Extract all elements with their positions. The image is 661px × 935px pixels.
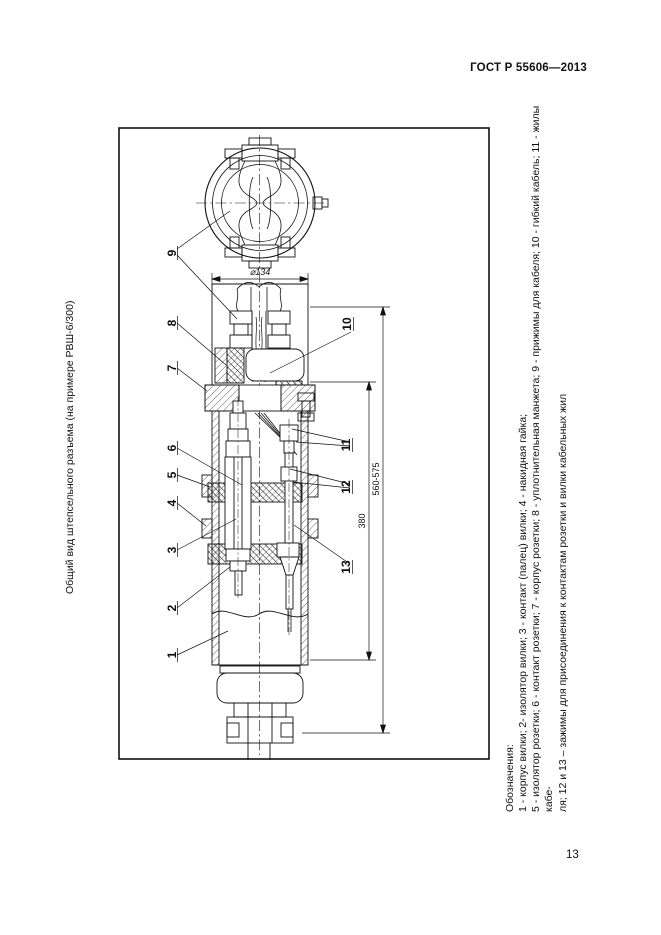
callout-9: 9 (165, 249, 179, 256)
dimension-diameter-label: ⌀134 (250, 267, 270, 277)
legend-line-2: 1 - корпус вилки; 2- изолятор вилки; 3 -… (517, 88, 530, 812)
legend-line-3: 5 - изолятор розетки; 6 - контакт розетк… (530, 88, 556, 812)
flexible-cable-part (246, 349, 304, 381)
cable-entry (237, 282, 282, 311)
callout-2: 2 (165, 604, 179, 611)
callout-3: 3 (165, 546, 179, 553)
sealing-sleeve (215, 348, 244, 383)
body-wall-left (212, 411, 219, 665)
callout-4: 4 (165, 499, 179, 506)
section-view (202, 282, 318, 760)
socket-contact-column (277, 425, 299, 632)
callout-12: 12 (339, 480, 353, 494)
callout-10: 10 (340, 317, 354, 331)
callout-13: 13 (339, 560, 353, 574)
callout-8: 8 (165, 319, 179, 326)
standard-code: ГОСТ Р 55606—2013 (435, 62, 587, 74)
callout-11: 11 (339, 438, 353, 451)
page-number: 13 (566, 849, 579, 861)
dimension-560-575-label: 560-575 (371, 462, 381, 495)
technical-drawing: ⌀134 (118, 127, 490, 760)
body-wall-right (301, 411, 308, 665)
figure-side-title-text: Общий вид штепсельного разъема (на приме… (64, 274, 77, 594)
dimension-diameter: ⌀134 (212, 267, 308, 285)
callout-1: 1 (165, 651, 179, 658)
cable-gland (212, 665, 308, 760)
break-line (212, 611, 308, 617)
callout-6: 6 (165, 444, 179, 451)
callout-5: 5 (165, 471, 179, 478)
callout-7: 7 (165, 364, 179, 371)
legend-line-1: Обозначения: (504, 88, 517, 812)
legend-line-4: ля; 12 и 13 – зажимы для присоединения к… (557, 88, 570, 812)
dimension-380: 380 (310, 382, 376, 660)
dimension-380-label: 380 (357, 513, 367, 528)
document-page: { "page": { "standard_code": "ГОСТ Р 556… (0, 0, 661, 935)
